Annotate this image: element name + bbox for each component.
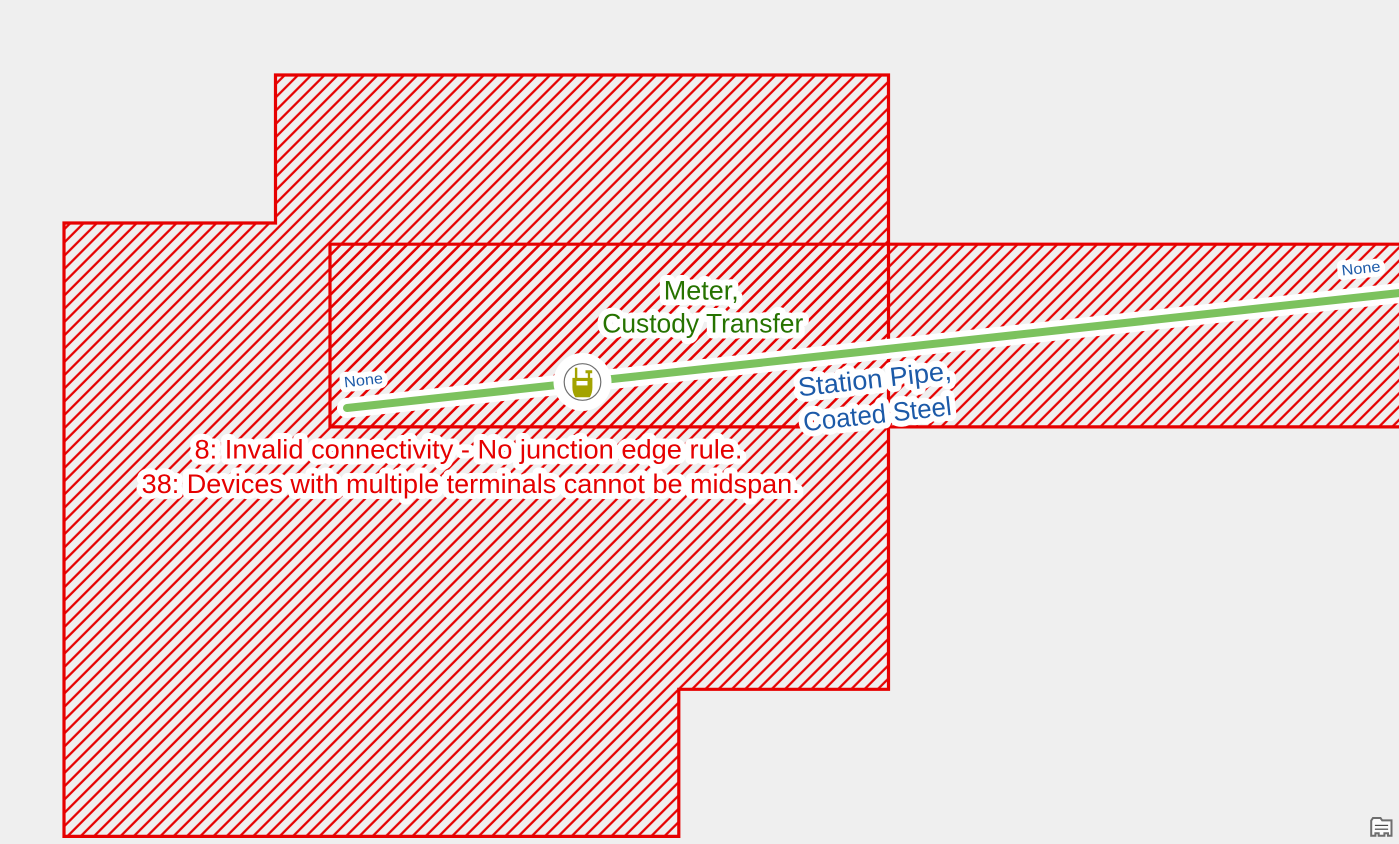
svg-text:38: Devices with multiple term: 38: Devices with multiple terminals cann…: [142, 469, 800, 499]
svg-text:Meter,: Meter,: [664, 275, 739, 305]
svg-text:8: Invalid connectivity - No j: 8: Invalid connectivity - No junction ed…: [195, 434, 743, 464]
svg-text:Custody Transfer: Custody Transfer: [602, 308, 803, 338]
